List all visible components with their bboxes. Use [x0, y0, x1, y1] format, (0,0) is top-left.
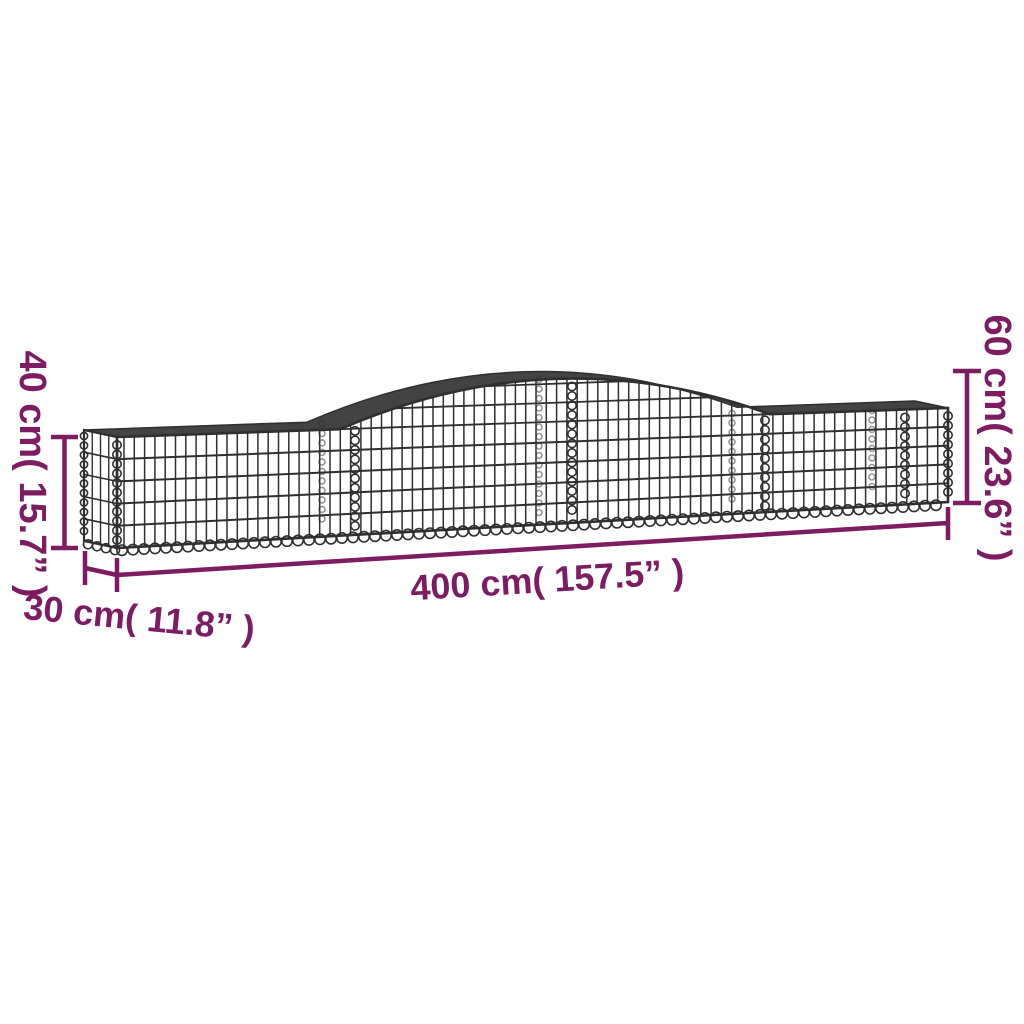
- dimension-annotations: 40 cm( 15.7” ) 60 cm( 23.6” ) 400 cm( 15…: [11, 314, 1018, 649]
- dimension-label-depth: 30 cm( 11.8” ): [22, 586, 257, 649]
- product-dimension-diagram: 40 cm( 15.7” ) 60 cm( 23.6” ) 400 cm( 15…: [0, 0, 1024, 1024]
- dimension-label-height-left: 40 cm( 15.7” ): [11, 350, 53, 597]
- gabion-basket-diagram: 40 cm( 15.7” ) 60 cm( 23.6” ) 400 cm( 15…: [0, 0, 1024, 1024]
- dimension-label-height-right: 60 cm( 23.6” ): [976, 314, 1018, 561]
- dimension-line-height-left: [51, 437, 78, 548]
- dimension-label-length: 400 cm( 157.5” ): [409, 551, 685, 609]
- dimension-line-depth: [85, 551, 117, 592]
- gabion-basket-wireframe: [80, 330, 952, 558]
